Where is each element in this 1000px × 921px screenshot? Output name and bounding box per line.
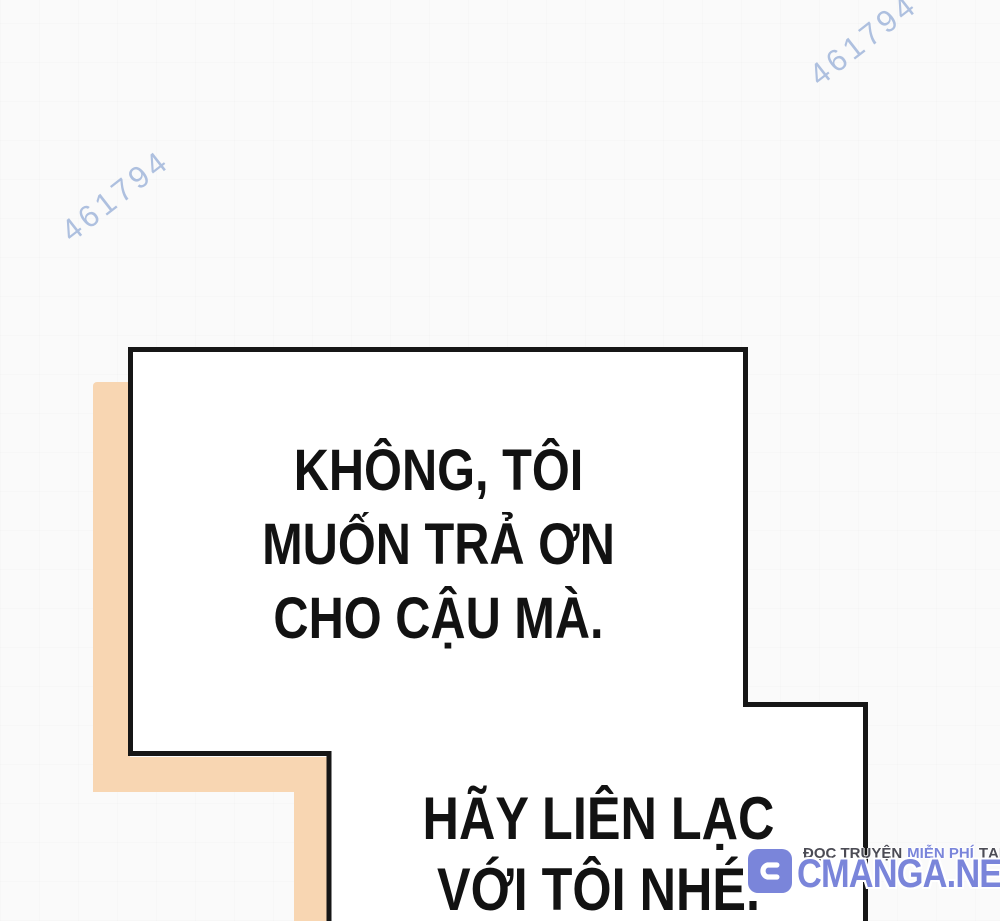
speech-line: CHO CẬU MÀ. — [180, 582, 697, 656]
manga-page: 461794 461794 KHÔNG, TÔI MUỐN TRẢ ƠN CHO… — [0, 0, 1000, 921]
cmanga-site-badge: ĐỌC TRUYỆN MIỄN PHÍ TẠI CMANGA.NET — [746, 844, 1000, 921]
speech-line: KHÔNG, TÔI — [180, 434, 697, 508]
cmanga-logo-icon — [748, 849, 792, 893]
cmanga-site-name: CMANGA.NET — [797, 852, 1000, 897]
speech-line: MUỐN TRẢ ƠN — [180, 508, 697, 582]
speech-bubble-no-repay: KHÔNG, TÔI MUỐN TRẢ ƠN CHO CẬU MÀ. — [131, 434, 746, 656]
cmanga-c-icon — [755, 856, 785, 886]
